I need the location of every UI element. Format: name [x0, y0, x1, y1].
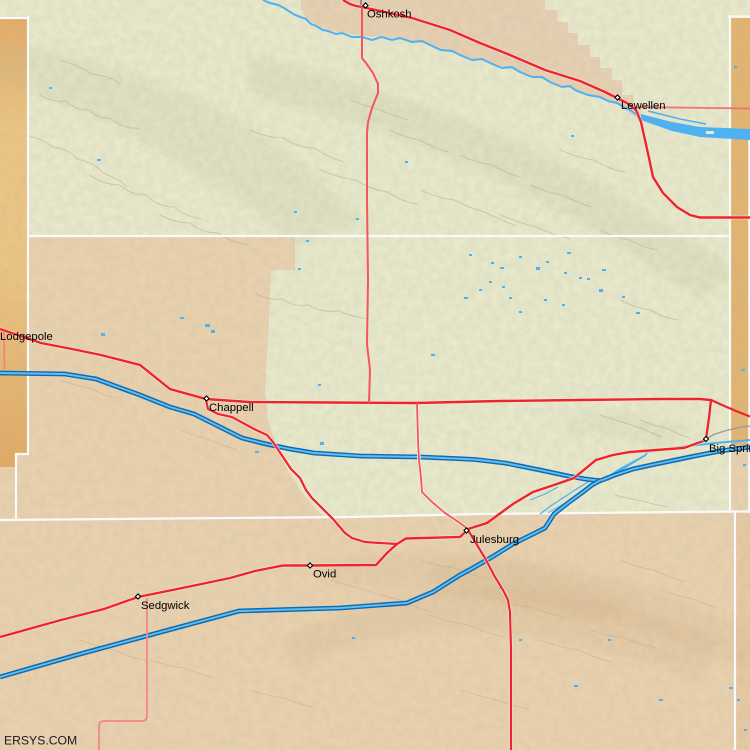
- svg-text:Oshkosh: Oshkosh: [367, 9, 412, 21]
- svg-text:Sedgwick: Sedgwick: [141, 600, 190, 612]
- svg-text:Ovid: Ovid: [313, 569, 336, 581]
- svg-text:Lewellen: Lewellen: [621, 100, 666, 112]
- svg-text:Julesburg: Julesburg: [470, 534, 519, 546]
- svg-text:Big Springs: Big Springs: [709, 443, 750, 455]
- svg-text:Lodgepole: Lodgepole: [0, 331, 53, 343]
- svg-text:ERSYS.COM: ERSYS.COM: [4, 734, 77, 748]
- svg-text:Chappell: Chappell: [209, 402, 254, 414]
